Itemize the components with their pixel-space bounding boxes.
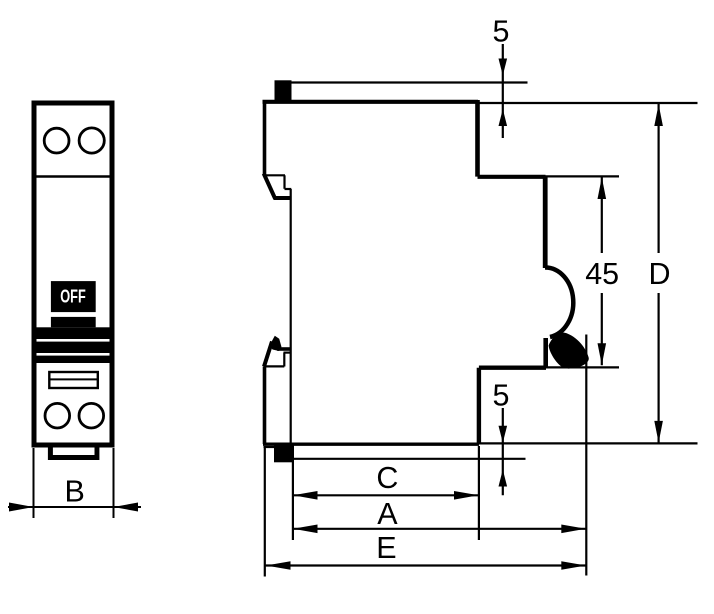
svg-text:D: D (648, 257, 670, 291)
svg-text:A: A (377, 497, 398, 531)
svg-text:45: 45 (585, 257, 619, 291)
svg-text:E: E (376, 531, 396, 565)
svg-text:OFF: OFF (60, 286, 86, 307)
svg-text:B: B (65, 475, 85, 509)
svg-text:5: 5 (493, 15, 510, 49)
svg-text:C: C (376, 461, 398, 495)
svg-text:5: 5 (493, 379, 510, 413)
